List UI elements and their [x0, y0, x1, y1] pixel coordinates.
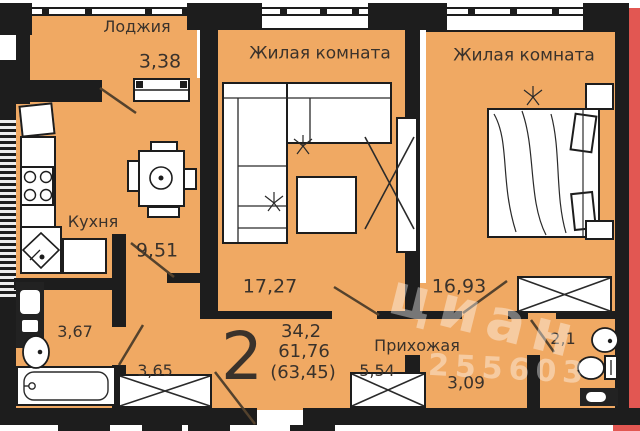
balcony-window-handle [136, 81, 143, 88]
wardrobe-living-2 [517, 276, 612, 313]
living-2-area-label: 16,93 [432, 278, 486, 297]
corridor-area-label: 3,09 [447, 376, 485, 393]
boiler [22, 320, 38, 332]
window-tick [145, 7, 152, 14]
wall [200, 311, 332, 319]
wall [112, 234, 126, 327]
hall-area-label: 3,65 [137, 363, 173, 379]
window-tick [352, 7, 359, 14]
coffee-table [296, 176, 357, 234]
hallway-name-label: Прихожая [374, 338, 460, 354]
wall [0, 60, 16, 117]
wc-washing-machine-door [586, 392, 606, 402]
window-tick [85, 7, 92, 14]
wall [527, 355, 540, 412]
dining-chair [147, 206, 180, 218]
window-tick [510, 7, 517, 14]
hallway-area-label: 5,54 [359, 363, 395, 379]
wall [187, 3, 262, 30]
kitchen-counter-2 [62, 238, 107, 274]
washing-machine [20, 290, 40, 314]
toilet-tank [604, 355, 618, 380]
wall [200, 3, 218, 319]
living-1-area-label: 17,27 [243, 278, 297, 297]
stair-landing-mark [290, 425, 335, 431]
wall [303, 408, 640, 425]
floor-plan: Лоджия 3,38 Жилая комната Жилая комната … [0, 0, 640, 431]
nightstand [585, 220, 614, 240]
sofa-left-section [222, 82, 288, 244]
window-loggia [30, 7, 187, 16]
wall [0, 408, 257, 425]
balcony-window-handle [180, 81, 187, 88]
kitchen-area-label: 9,51 [136, 242, 178, 261]
wall [0, 300, 16, 425]
stair-landing-mark [188, 425, 230, 431]
wc-area-label: 2,1 [550, 331, 575, 347]
rooms-count-label: 2 [221, 324, 263, 390]
window-tick [280, 7, 287, 14]
neighbor-apartment-strip [629, 8, 640, 418]
bathtub [16, 366, 116, 406]
living-1-name-label: Жилая комната [249, 46, 391, 63]
total-area-label: (63,45) [270, 364, 336, 382]
window-tick [468, 7, 475, 14]
wall [167, 273, 218, 283]
loggia-name-label: Лоджия [103, 19, 170, 35]
dining-chair [183, 168, 197, 190]
kitchen-name-label: Кухня [68, 214, 118, 230]
window-tick [42, 7, 49, 14]
wall [16, 80, 102, 102]
nightstand [585, 83, 614, 110]
stove [20, 166, 54, 206]
wardrobe-living-1 [396, 117, 418, 253]
fridge [18, 102, 55, 137]
wall [420, 311, 462, 319]
living-2-name-label: Жилая комната [453, 48, 595, 65]
living-area-label: 34,2 [281, 323, 321, 341]
stair-landing-mark [58, 424, 110, 431]
window-tick [552, 7, 559, 14]
kitchen-sink-unit [20, 226, 62, 274]
window-tick [320, 7, 327, 14]
stair-landing-mark [142, 425, 182, 431]
apartment-area-label: 61,76 [278, 343, 330, 361]
wall-hatched [0, 117, 16, 300]
loggia-area-label: 3,38 [139, 53, 181, 72]
dining-table [138, 150, 185, 207]
bathroom-area-label: 3,67 [57, 324, 93, 340]
